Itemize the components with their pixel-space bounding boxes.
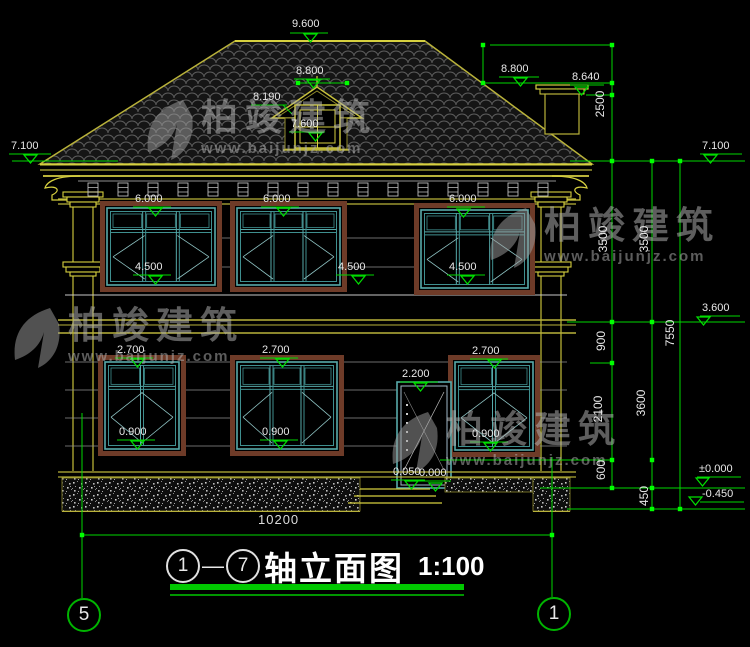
title-axis-start: 1 bbox=[166, 549, 200, 583]
axis-bubble-1: 1 bbox=[537, 597, 571, 631]
axis-bubble-5-label: 5 bbox=[79, 604, 90, 626]
dentil bbox=[508, 183, 518, 196]
dentil bbox=[118, 183, 128, 196]
title-axis-end: 7 bbox=[226, 549, 260, 583]
dentil bbox=[238, 183, 248, 196]
title-separator: — bbox=[202, 553, 224, 579]
dentil bbox=[178, 183, 188, 196]
dentil bbox=[328, 183, 338, 196]
dentil bbox=[418, 183, 428, 196]
dentil bbox=[358, 183, 368, 196]
window-floor2-2 bbox=[233, 204, 345, 290]
title-underline-thin bbox=[170, 594, 464, 596]
cad-elevation-drawing: 柏竣建筑 www.baijunjz.com 柏竣建筑 www.baijunjz.… bbox=[0, 0, 750, 647]
drawing-title: 1 — 7 轴立面图 1:100 bbox=[166, 542, 485, 590]
axis-bubble-1-label: 1 bbox=[549, 603, 560, 625]
pilaster-left bbox=[63, 192, 103, 471]
axis-bubble-5: 5 bbox=[67, 598, 101, 632]
window-floor1-2 bbox=[233, 358, 342, 454]
dentil bbox=[148, 183, 158, 196]
dentil bbox=[388, 183, 398, 196]
window-floor1-3 bbox=[451, 358, 538, 455]
dentil bbox=[298, 183, 308, 196]
dentil bbox=[208, 183, 218, 196]
dentil bbox=[268, 183, 278, 196]
title-scale: 1:100 bbox=[418, 551, 485, 582]
eave-cornice bbox=[40, 170, 592, 204]
chimney bbox=[536, 85, 588, 134]
window-floor1-1 bbox=[101, 358, 184, 454]
floor-band bbox=[58, 295, 576, 333]
ground bbox=[58, 472, 576, 512]
dentil bbox=[478, 183, 488, 196]
title-name: 轴立面图 bbox=[264, 542, 404, 590]
title-underline-thick bbox=[170, 584, 464, 590]
dentil bbox=[448, 183, 458, 196]
window-floor2-3 bbox=[417, 206, 533, 293]
